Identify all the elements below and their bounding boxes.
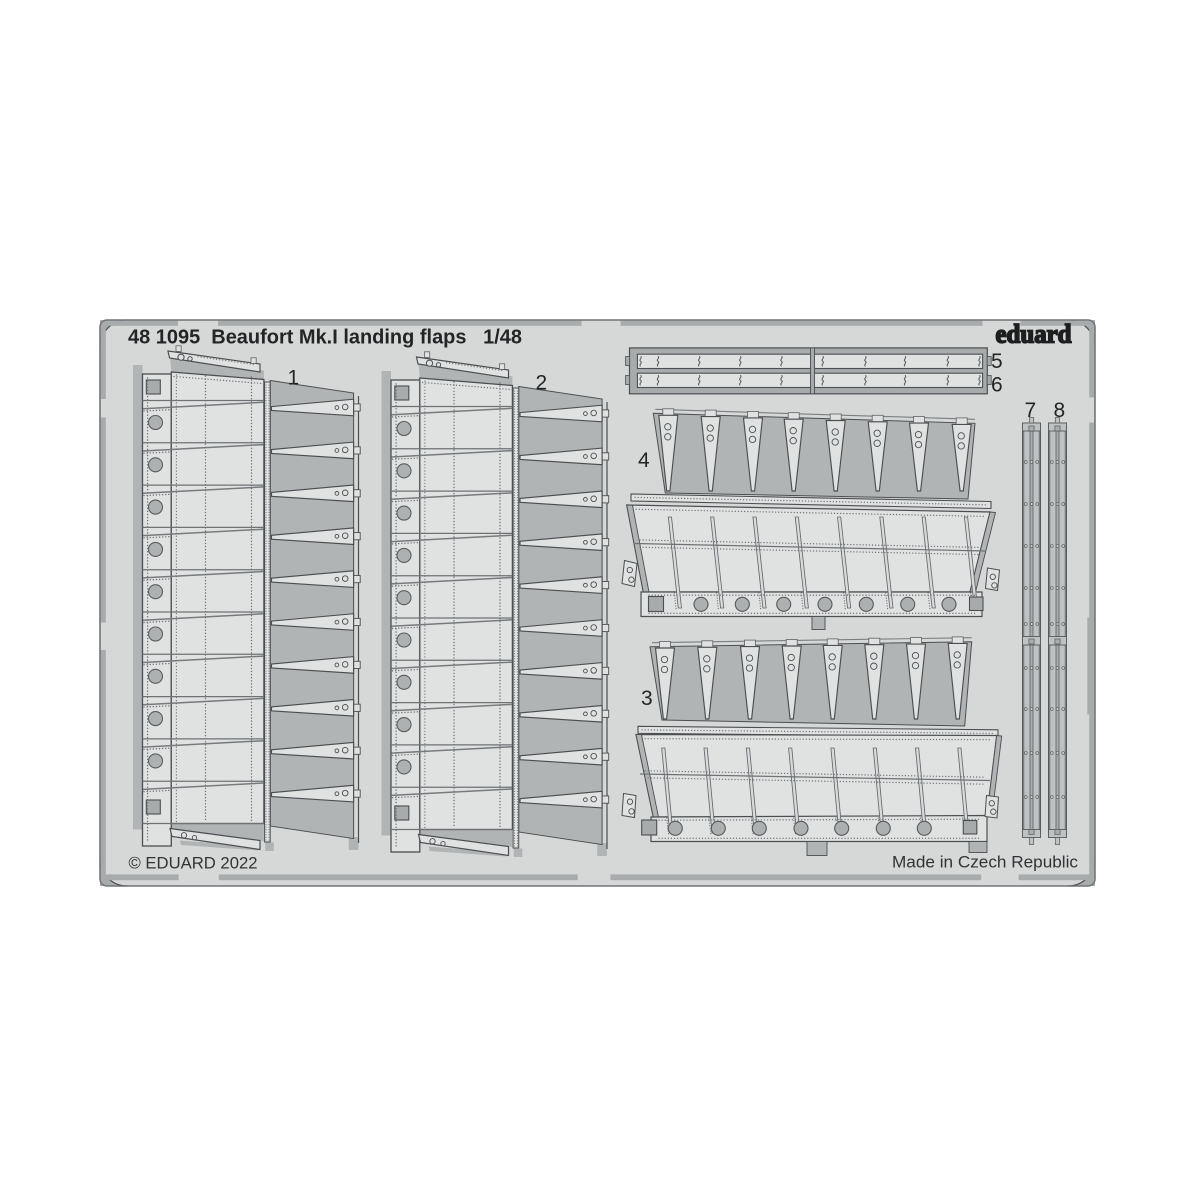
- svg-text:Made in Czech Republic: Made in Czech Republic: [892, 854, 1078, 872]
- svg-text:2: 2: [536, 372, 548, 395]
- svg-text:8: 8: [1054, 399, 1066, 422]
- svg-text:7: 7: [1025, 399, 1037, 422]
- svg-text:48 1095 Beaufort Mk.I landing: 48 1095 Beaufort Mk.I landing flaps 1/48: [128, 326, 522, 349]
- svg-text:3: 3: [641, 687, 653, 710]
- svg-text:6: 6: [991, 374, 1003, 397]
- svg-text:© EDUARD 2022: © EDUARD 2022: [129, 855, 258, 873]
- svg-text:4: 4: [638, 449, 650, 472]
- svg-text:1: 1: [288, 367, 300, 390]
- svg-text:eduard: eduard: [996, 320, 1073, 349]
- svg-text:5: 5: [991, 350, 1003, 373]
